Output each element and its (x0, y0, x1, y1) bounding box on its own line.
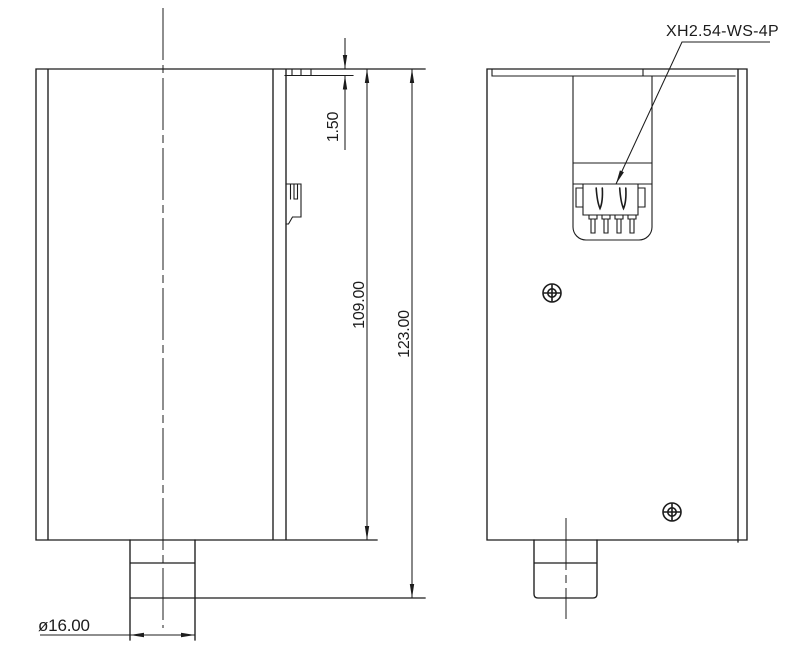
dimension-overall-height: 123.00 (396, 69, 414, 598)
right-view (487, 69, 747, 619)
dim-arrow-icon (410, 69, 414, 83)
dim-arrow-icon (365, 526, 369, 540)
connector-label: XH2.54-WS-4P (666, 23, 779, 40)
bottom-boss-left (130, 540, 425, 640)
screw-icon (543, 284, 561, 302)
dimension-body-height: 109.00 (351, 69, 369, 540)
dim-arrow-icon (343, 76, 347, 90)
dim-text-overall-height: 123.00 (396, 310, 413, 358)
dim-arrow-icon (410, 584, 414, 598)
dimension-boss-diameter: ø16.00 (38, 616, 195, 637)
socket-contacts (596, 188, 626, 209)
socket-pins (589, 215, 636, 233)
right-body-outline (487, 69, 747, 542)
dimension-lip: 1.50 (325, 38, 347, 150)
dim-text-boss-diameter: ø16.00 (38, 616, 90, 635)
screw-icon (663, 503, 681, 521)
dim-arrow-icon (130, 633, 144, 637)
top-lip-step-line (285, 69, 353, 76)
top-panel-inner-line (492, 69, 735, 76)
dim-arrow-icon (343, 55, 347, 69)
dim-arrow-icon (365, 69, 369, 83)
connector-socket-body (576, 184, 645, 215)
leader-arrow-icon (616, 170, 624, 184)
connector-callout: XH2.54-WS-4P (616, 23, 779, 184)
drawing-canvas: 1.50 109.00 123.00 ø16.00 XH2.54-WS-4P (0, 0, 800, 660)
mounting-clip (286, 184, 301, 224)
dim-text-lip: 1.50 (325, 112, 342, 143)
dim-text-body-height: 109.00 (351, 281, 368, 329)
engineering-drawing: 1.50 109.00 123.00 ø16.00 XH2.54-WS-4P (0, 0, 800, 660)
dim-arrow-icon (181, 633, 195, 637)
